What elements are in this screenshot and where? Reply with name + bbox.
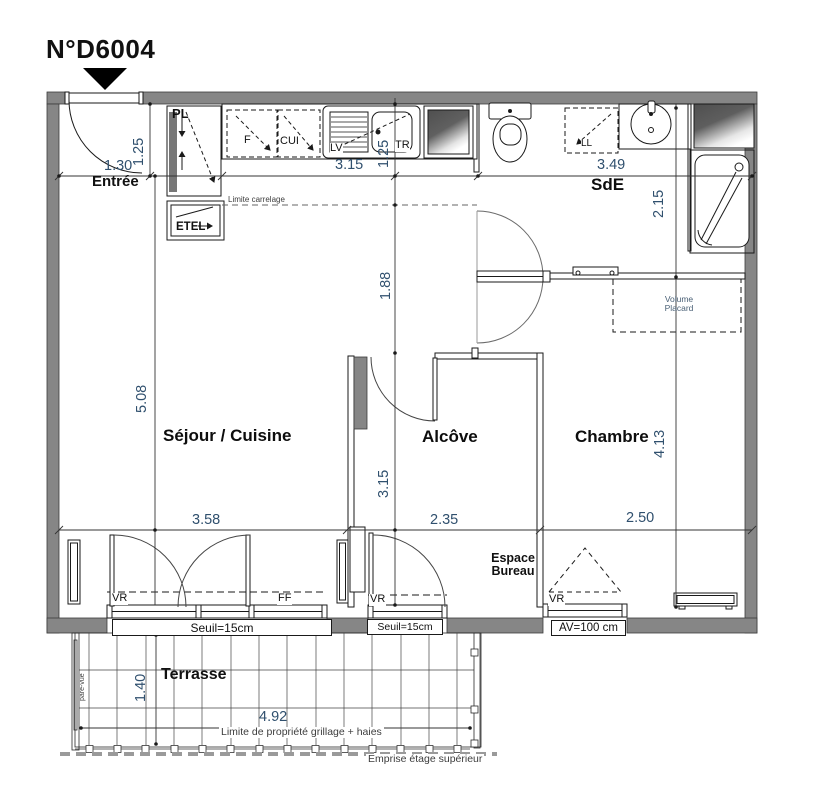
dim-cuisine-depth: 1.25	[377, 140, 392, 168]
shower	[690, 150, 754, 253]
dim-degagement-depth: 1.88	[379, 272, 394, 300]
volume-placard-label: Volume Placard	[658, 295, 700, 313]
tri-label: TR	[395, 140, 410, 152]
seuil-badge-sejour: Seuil=15cm	[112, 619, 332, 636]
etel-label: ETEL	[176, 221, 205, 233]
cuisiniere-label: CUI	[280, 136, 299, 148]
pare-vue-label: pare-vue	[79, 673, 86, 701]
radiators	[68, 540, 737, 609]
dim-sde-width: 3.49	[597, 158, 625, 173]
room-label-alcove: Alcôve	[422, 428, 478, 446]
dim-sejour-width: 3.58	[192, 513, 220, 528]
sde-swing-door	[477, 211, 543, 343]
ff-label: FF	[277, 593, 292, 605]
dim-entree-width: 1.30	[104, 159, 132, 174]
dim-sde-depth: 2.15	[652, 190, 667, 218]
alcove-door	[371, 357, 437, 421]
room-label-entree: Entrée	[92, 174, 139, 190]
dimension-ticks	[55, 172, 756, 534]
interior-walls	[348, 104, 745, 607]
frigo-label: F	[244, 135, 251, 147]
room-label-chambre: Chambre	[575, 428, 649, 446]
floor-plan: N°D6004 Entrée Séjour / Cuisine Alcôve C…	[0, 0, 833, 800]
dim-chambre-depth: 4.13	[653, 430, 668, 458]
wall-shelf	[573, 267, 618, 275]
room-label-espace-bureau: Espace Bureau	[487, 552, 539, 578]
dim-alcove-depth: 3.15	[377, 470, 392, 498]
dim-entree-depth: 1.25	[132, 138, 147, 166]
washbasin	[619, 101, 691, 149]
placard-label: PL	[172, 107, 189, 121]
av-badge-chambre: AV=100 cm	[551, 620, 626, 636]
dim-chambre-width: 2.50	[626, 511, 654, 526]
lave-vaisselle-label: LV	[330, 143, 343, 155]
exterior-walls	[47, 92, 757, 633]
room-label-sejour-cuisine: Séjour / Cuisine	[163, 427, 291, 445]
dimension-dots	[57, 102, 754, 746]
plan-title: N°D6004	[46, 36, 155, 63]
emprise-label: Emprise étage supérieur	[366, 754, 484, 765]
dim-alcove-width: 2.35	[430, 513, 458, 528]
vr-label-sejour: VR	[111, 593, 128, 605]
dim-terrasse-width: 4.92	[259, 710, 287, 725]
seuil-badge-alcove: Seuil=15cm	[367, 619, 443, 635]
room-label-sde: SdE	[591, 176, 624, 194]
entrance-marker	[83, 68, 127, 90]
dim-cuisine-width: 3.15	[335, 158, 363, 173]
room-label-terrasse: Terrasse	[161, 667, 227, 684]
vr-label-alcove: VR	[369, 594, 386, 606]
limite-carrelage-label: Limite carrelage	[226, 196, 287, 204]
duct	[354, 357, 367, 429]
limite-propriete-label: Limite de propriété grillage + haies	[219, 727, 384, 738]
dim-sejour-depth: 5.08	[135, 385, 150, 413]
vr-label-chambre: VR	[548, 594, 565, 606]
lave-linge-label: LL	[581, 139, 592, 150]
column	[694, 104, 754, 148]
cooktop	[424, 106, 473, 158]
floor-plan-drawing	[0, 0, 833, 800]
dim-terrasse-depth: 1.40	[134, 674, 149, 702]
toilet	[489, 103, 531, 162]
